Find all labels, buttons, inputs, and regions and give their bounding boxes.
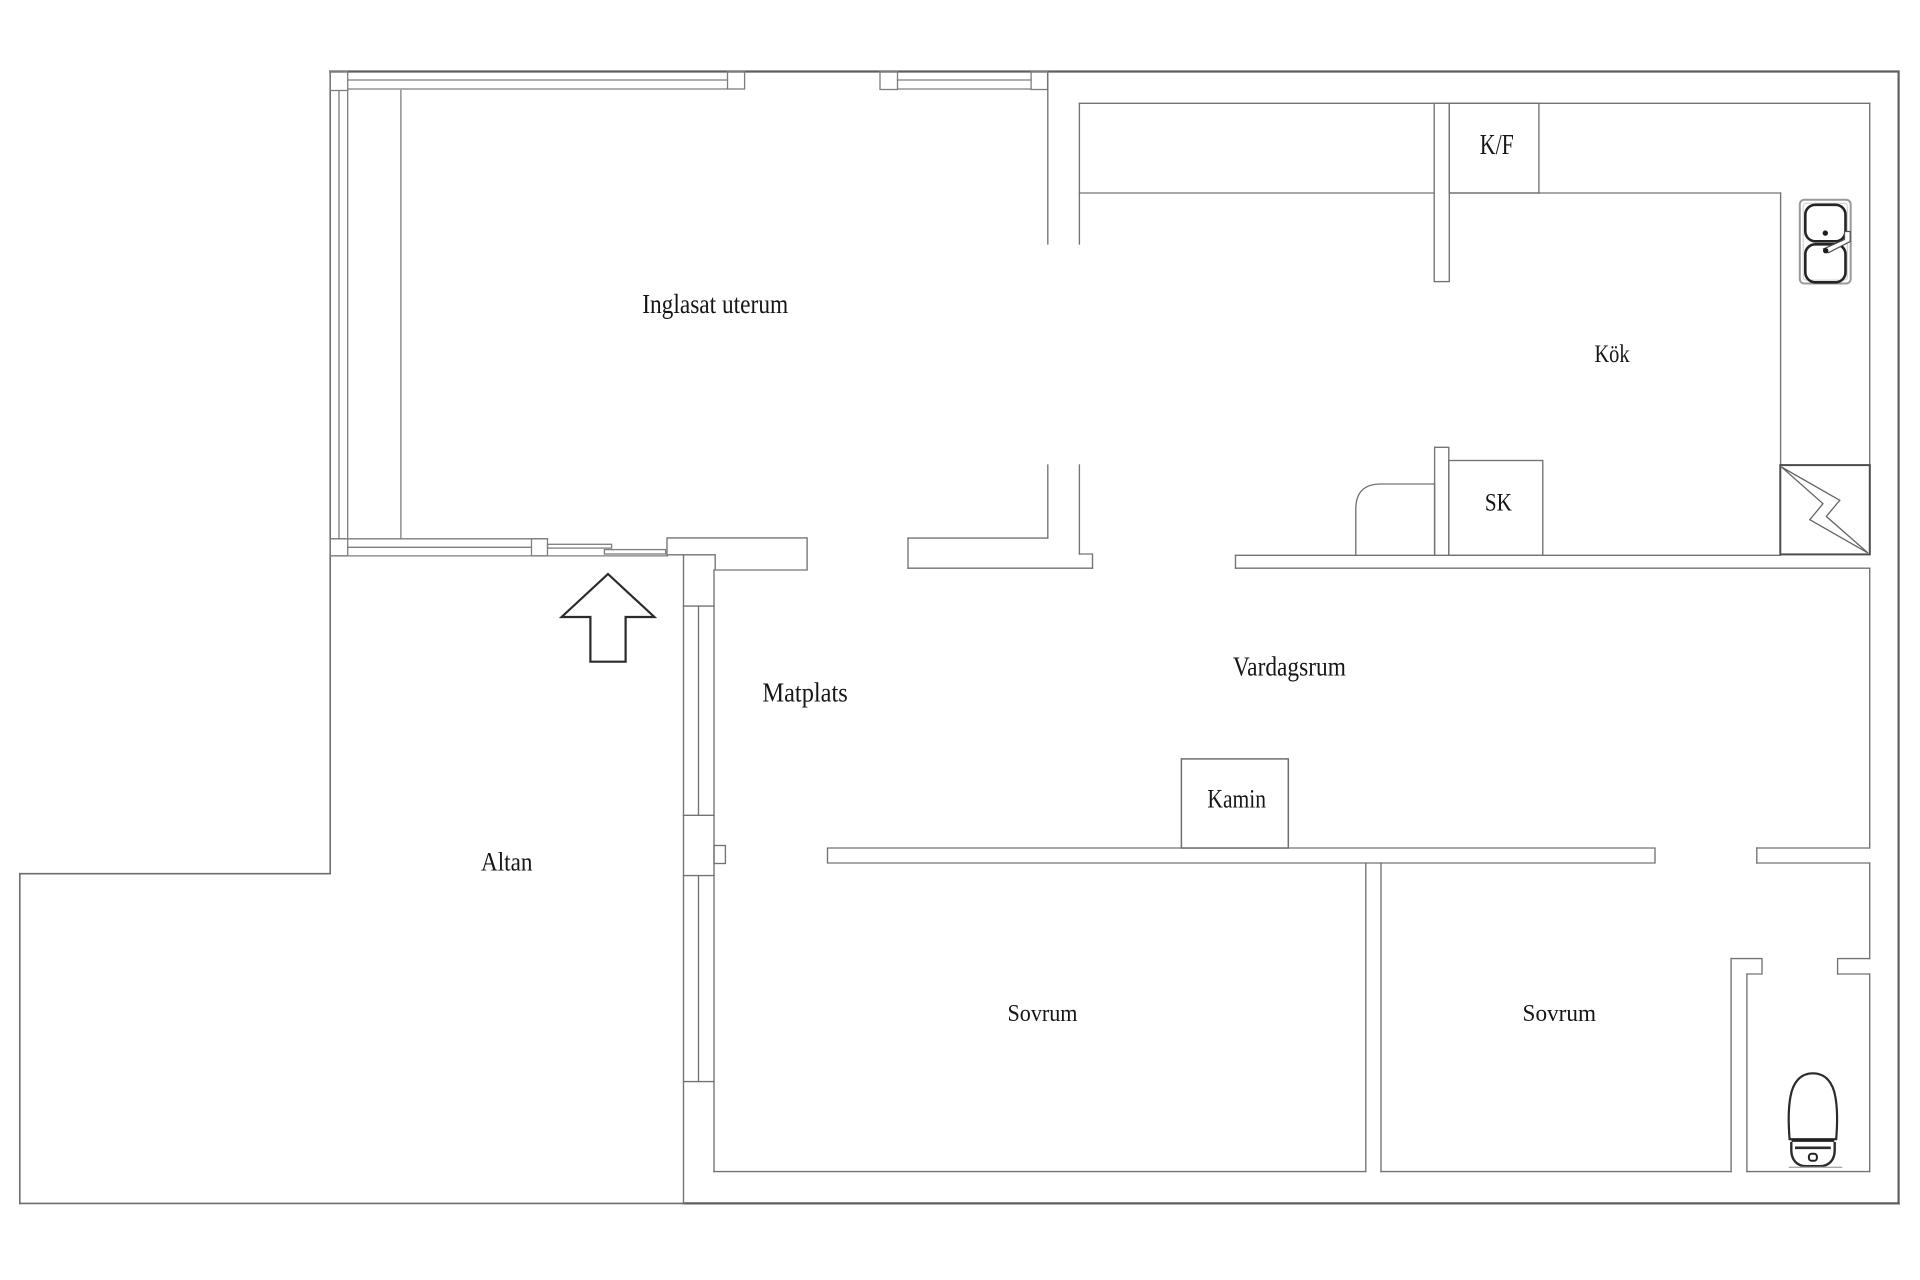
svg-text:K/F: K/F — [1480, 130, 1514, 161]
svg-text:SK: SK — [1485, 489, 1512, 516]
svg-text:Kamin: Kamin — [1207, 784, 1266, 813]
svg-text:Altan: Altan — [481, 847, 532, 877]
svg-text:Inglasat uterum: Inglasat uterum — [642, 288, 788, 319]
svg-text:Matplats: Matplats — [762, 678, 847, 708]
svg-text:Kök: Kök — [1595, 341, 1630, 368]
svg-text:Vardagsrum: Vardagsrum — [1233, 651, 1346, 682]
svg-text:Sovrum: Sovrum — [1008, 1000, 1078, 1027]
svg-text:Sovrum: Sovrum — [1523, 1000, 1597, 1027]
